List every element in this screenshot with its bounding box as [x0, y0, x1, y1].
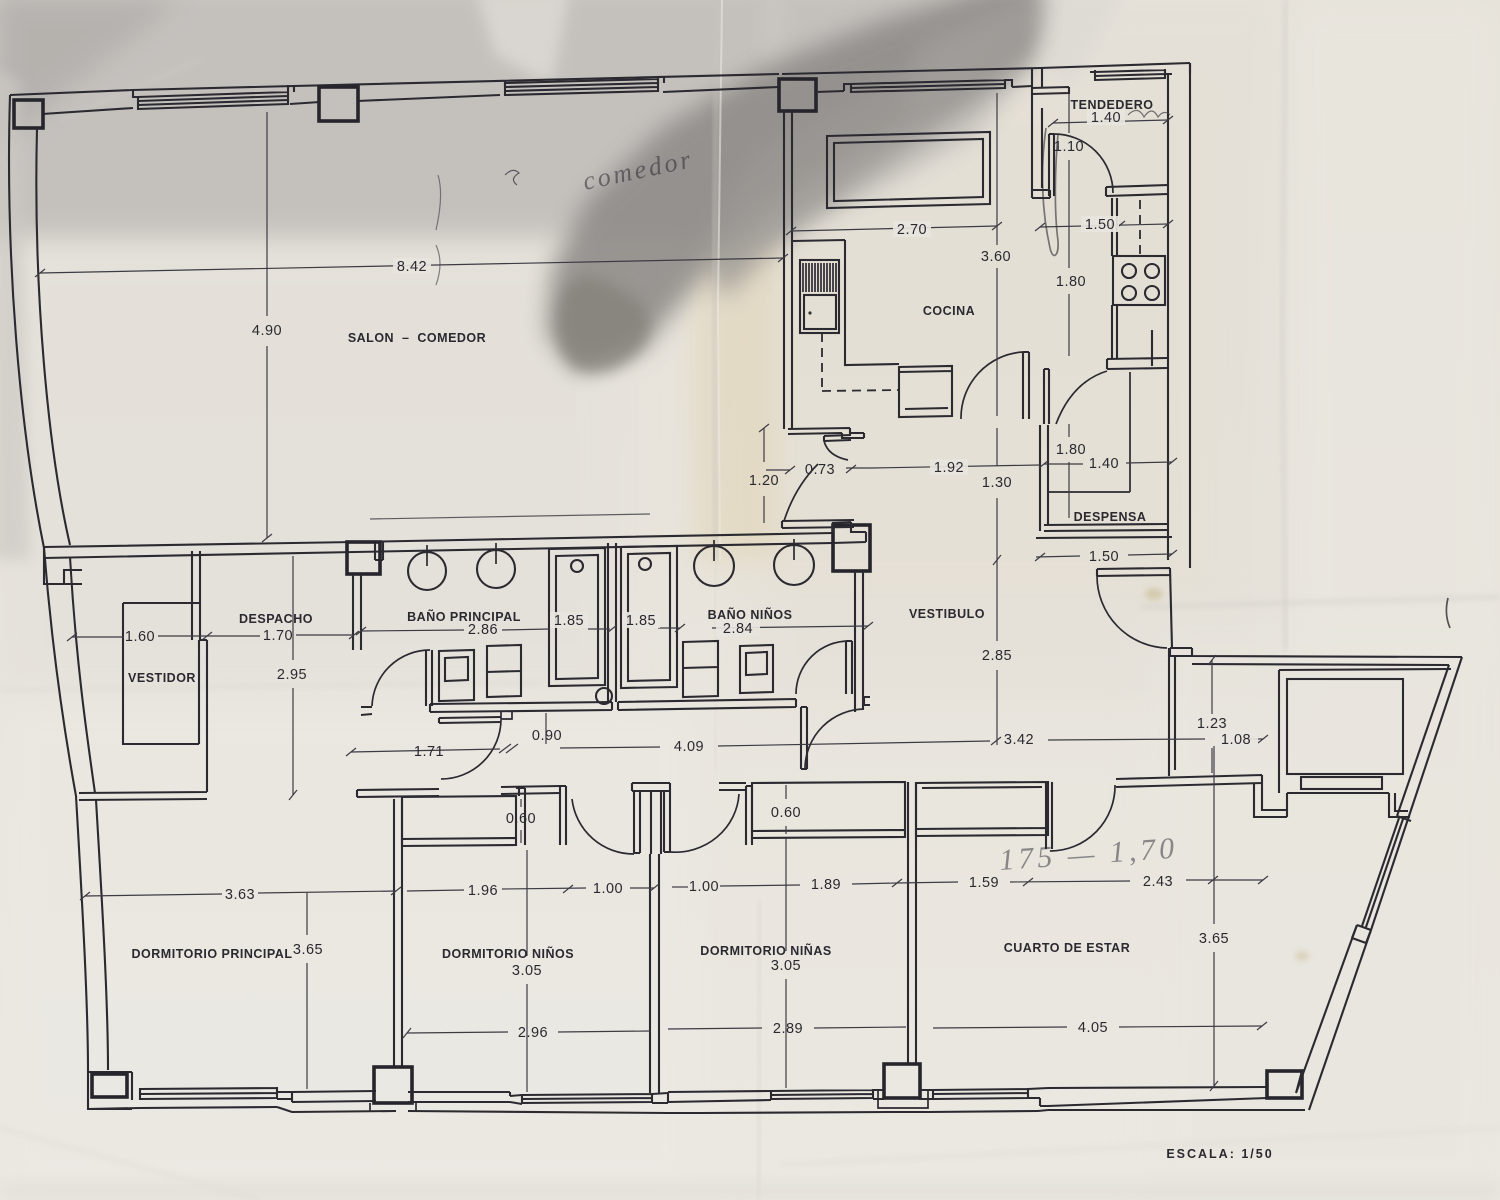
svg-text:1.80: 1.80 [1056, 442, 1086, 458]
svg-text:8.42: 8.42 [397, 259, 427, 275]
svg-text:BAÑO PRINCIPAL: BAÑO PRINCIPAL [407, 609, 521, 624]
svg-text:2.96: 2.96 [518, 1025, 548, 1041]
svg-text:3.65: 3.65 [1199, 931, 1229, 947]
svg-text:SALON – COMEDOR: SALON – COMEDOR [348, 331, 486, 345]
svg-text:VESTIBULO: VESTIBULO [909, 607, 985, 621]
svg-text:DORMITORIO PRINCIPAL: DORMITORIO PRINCIPAL [132, 947, 293, 961]
svg-text:1.40: 1.40 [1089, 456, 1119, 472]
svg-text:1.71: 1.71 [414, 744, 444, 760]
svg-text:1.85: 1.85 [554, 613, 584, 629]
svg-text:4.05: 4.05 [1078, 1020, 1108, 1036]
svg-text:4.90: 4.90 [252, 323, 282, 339]
svg-text:0.60: 0.60 [506, 811, 536, 827]
svg-text:DESPACHO: DESPACHO [239, 612, 313, 626]
svg-text:BAÑO NIÑOS: BAÑO NIÑOS [708, 607, 793, 622]
svg-text:1.80: 1.80 [1056, 274, 1086, 290]
svg-text:1.08: 1.08 [1221, 732, 1251, 748]
svg-text:2.86: 2.86 [468, 622, 498, 638]
svg-text:1.00: 1.00 [593, 881, 623, 897]
svg-text:1.85: 1.85 [626, 613, 656, 629]
svg-text:2.70: 2.70 [897, 222, 927, 238]
svg-text:1.50: 1.50 [1085, 217, 1115, 233]
svg-text:3.60: 3.60 [981, 249, 1011, 265]
svg-text:0.90: 0.90 [532, 728, 562, 744]
svg-text:1.70: 1.70 [263, 628, 293, 644]
svg-text:1.92: 1.92 [934, 460, 964, 476]
svg-text:1.59: 1.59 [969, 875, 999, 891]
svg-text:2.84: 2.84 [723, 621, 753, 637]
svg-text:3.63: 3.63 [225, 887, 255, 903]
svg-text:3.05: 3.05 [512, 963, 542, 979]
svg-text:1.60: 1.60 [125, 629, 155, 645]
svg-text:3.05: 3.05 [771, 958, 801, 974]
svg-text:1.20: 1.20 [749, 473, 779, 489]
svg-text:4.09: 4.09 [674, 739, 704, 755]
svg-text:ESCALA: 1/50: ESCALA: 1/50 [1166, 1147, 1273, 1161]
svg-text:1.50: 1.50 [1089, 549, 1119, 565]
svg-text:1.89: 1.89 [811, 877, 841, 893]
svg-text:DORMITORIO NIÑOS: DORMITORIO NIÑOS [442, 946, 574, 961]
svg-text:3.65: 3.65 [293, 942, 323, 958]
svg-text:1.40: 1.40 [1091, 110, 1121, 126]
svg-text:1.23: 1.23 [1197, 716, 1227, 732]
svg-text:1.30: 1.30 [982, 475, 1012, 491]
svg-text:DESPENSA: DESPENSA [1074, 510, 1147, 524]
svg-text:0.73: 0.73 [805, 462, 835, 478]
svg-text:2.85: 2.85 [982, 648, 1012, 664]
svg-text:1.10: 1.10 [1054, 139, 1084, 155]
svg-text:COCINA: COCINA [923, 304, 975, 318]
svg-text:DORMITORIO NIÑAS: DORMITORIO NIÑAS [700, 943, 831, 958]
svg-text:1.96: 1.96 [468, 883, 498, 899]
svg-text:2.95: 2.95 [277, 667, 307, 683]
svg-text:2.89: 2.89 [773, 1021, 803, 1037]
svg-text:VESTIDOR: VESTIDOR [128, 671, 196, 685]
svg-text:2.43: 2.43 [1143, 874, 1173, 890]
svg-text:CUARTO DE ESTAR: CUARTO DE ESTAR [1004, 941, 1131, 955]
svg-text:TENDEDERO: TENDEDERO [1071, 98, 1154, 112]
svg-text:3.42: 3.42 [1004, 732, 1034, 748]
svg-text:1.00: 1.00 [689, 879, 719, 895]
svg-text:0.60: 0.60 [771, 805, 801, 821]
